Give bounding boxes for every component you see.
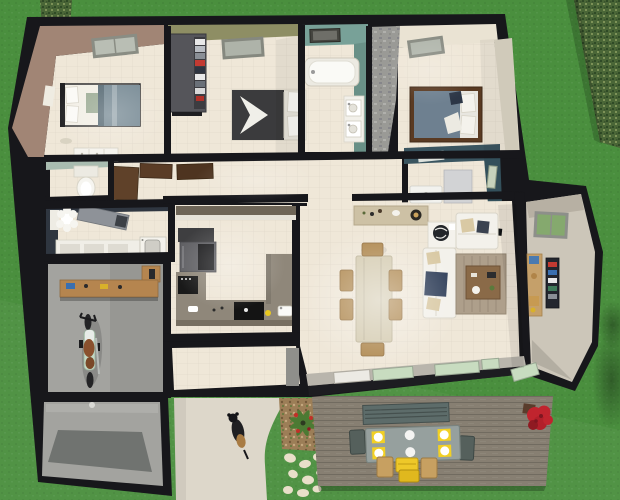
coffee-table[interactable]	[466, 266, 500, 299]
garage-wall-item	[89, 402, 95, 408]
pillow	[476, 220, 489, 233]
open-wardrobe[interactable]	[170, 34, 206, 116]
double-vanity[interactable]	[344, 96, 364, 142]
mudroom-floor	[172, 346, 300, 390]
pillow	[460, 93, 476, 112]
entry-window[interactable]	[533, 211, 568, 239]
bathtub[interactable]	[305, 58, 359, 86]
bookshelf[interactable]	[546, 258, 559, 308]
sliding-door-panel[interactable]	[334, 370, 371, 384]
faucet	[311, 70, 315, 74]
open-door[interactable]	[140, 163, 172, 178]
book	[487, 272, 496, 278]
dish	[188, 306, 198, 312]
render-viewport[interactable]	[0, 0, 620, 500]
sliding-door-panel[interactable]	[482, 358, 500, 369]
tan-chair[interactable]	[377, 457, 393, 477]
mudroom-unit	[286, 348, 299, 386]
coat-rack[interactable]	[527, 254, 542, 316]
garage-bay	[42, 402, 163, 486]
tan-chair[interactable]	[421, 458, 437, 478]
open-door[interactable]	[111, 166, 139, 200]
tool-blue	[66, 283, 75, 289]
sink	[349, 125, 357, 133]
floorplan-3d-render[interactable]	[0, 0, 620, 500]
sink	[349, 104, 357, 112]
plate	[392, 210, 400, 216]
deck-edge-shadow	[318, 486, 546, 491]
flowers	[265, 310, 271, 316]
upper-cabinets[interactable]	[176, 206, 296, 215]
bathroom-window[interactable]	[310, 28, 340, 42]
outdoor-bench[interactable]	[363, 403, 450, 425]
driveway-shading	[174, 398, 186, 500]
plant	[490, 286, 495, 291]
pillow	[460, 218, 475, 233]
shower-room-window[interactable]	[487, 166, 497, 189]
skylight[interactable]	[221, 37, 264, 60]
bowl	[472, 286, 480, 294]
sideboard[interactable]	[354, 206, 428, 225]
globe-cabinet[interactable]	[428, 222, 456, 248]
pillow	[460, 115, 476, 134]
tool-clamp	[149, 269, 155, 279]
folded-clothes	[195, 39, 205, 101]
stacked-yellow-chairs[interactable]	[396, 458, 419, 482]
tool-yellow	[100, 284, 108, 289]
outdoor-chair-left[interactable]	[349, 430, 365, 455]
sofa-chaise[interactable]	[456, 213, 498, 249]
